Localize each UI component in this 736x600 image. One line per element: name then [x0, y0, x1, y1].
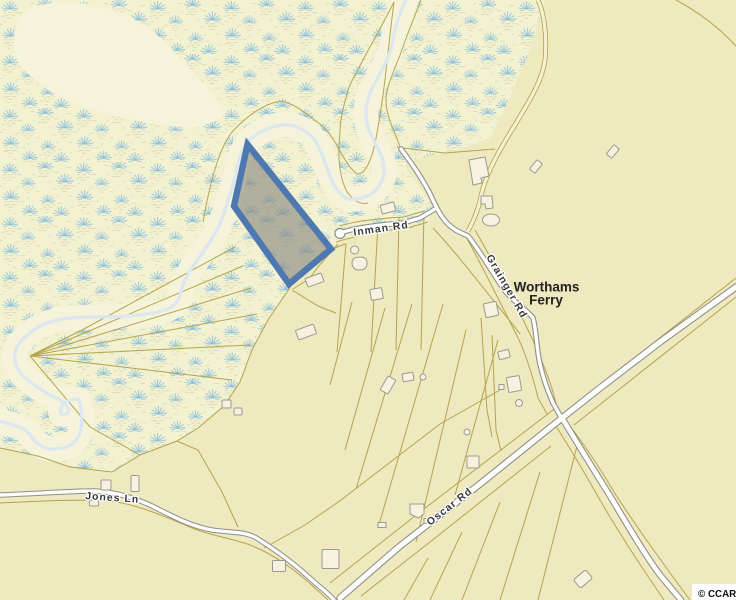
- svg-text:Ferry: Ferry: [529, 293, 563, 308]
- svg-text:© CCAR: © CCAR: [698, 589, 736, 600]
